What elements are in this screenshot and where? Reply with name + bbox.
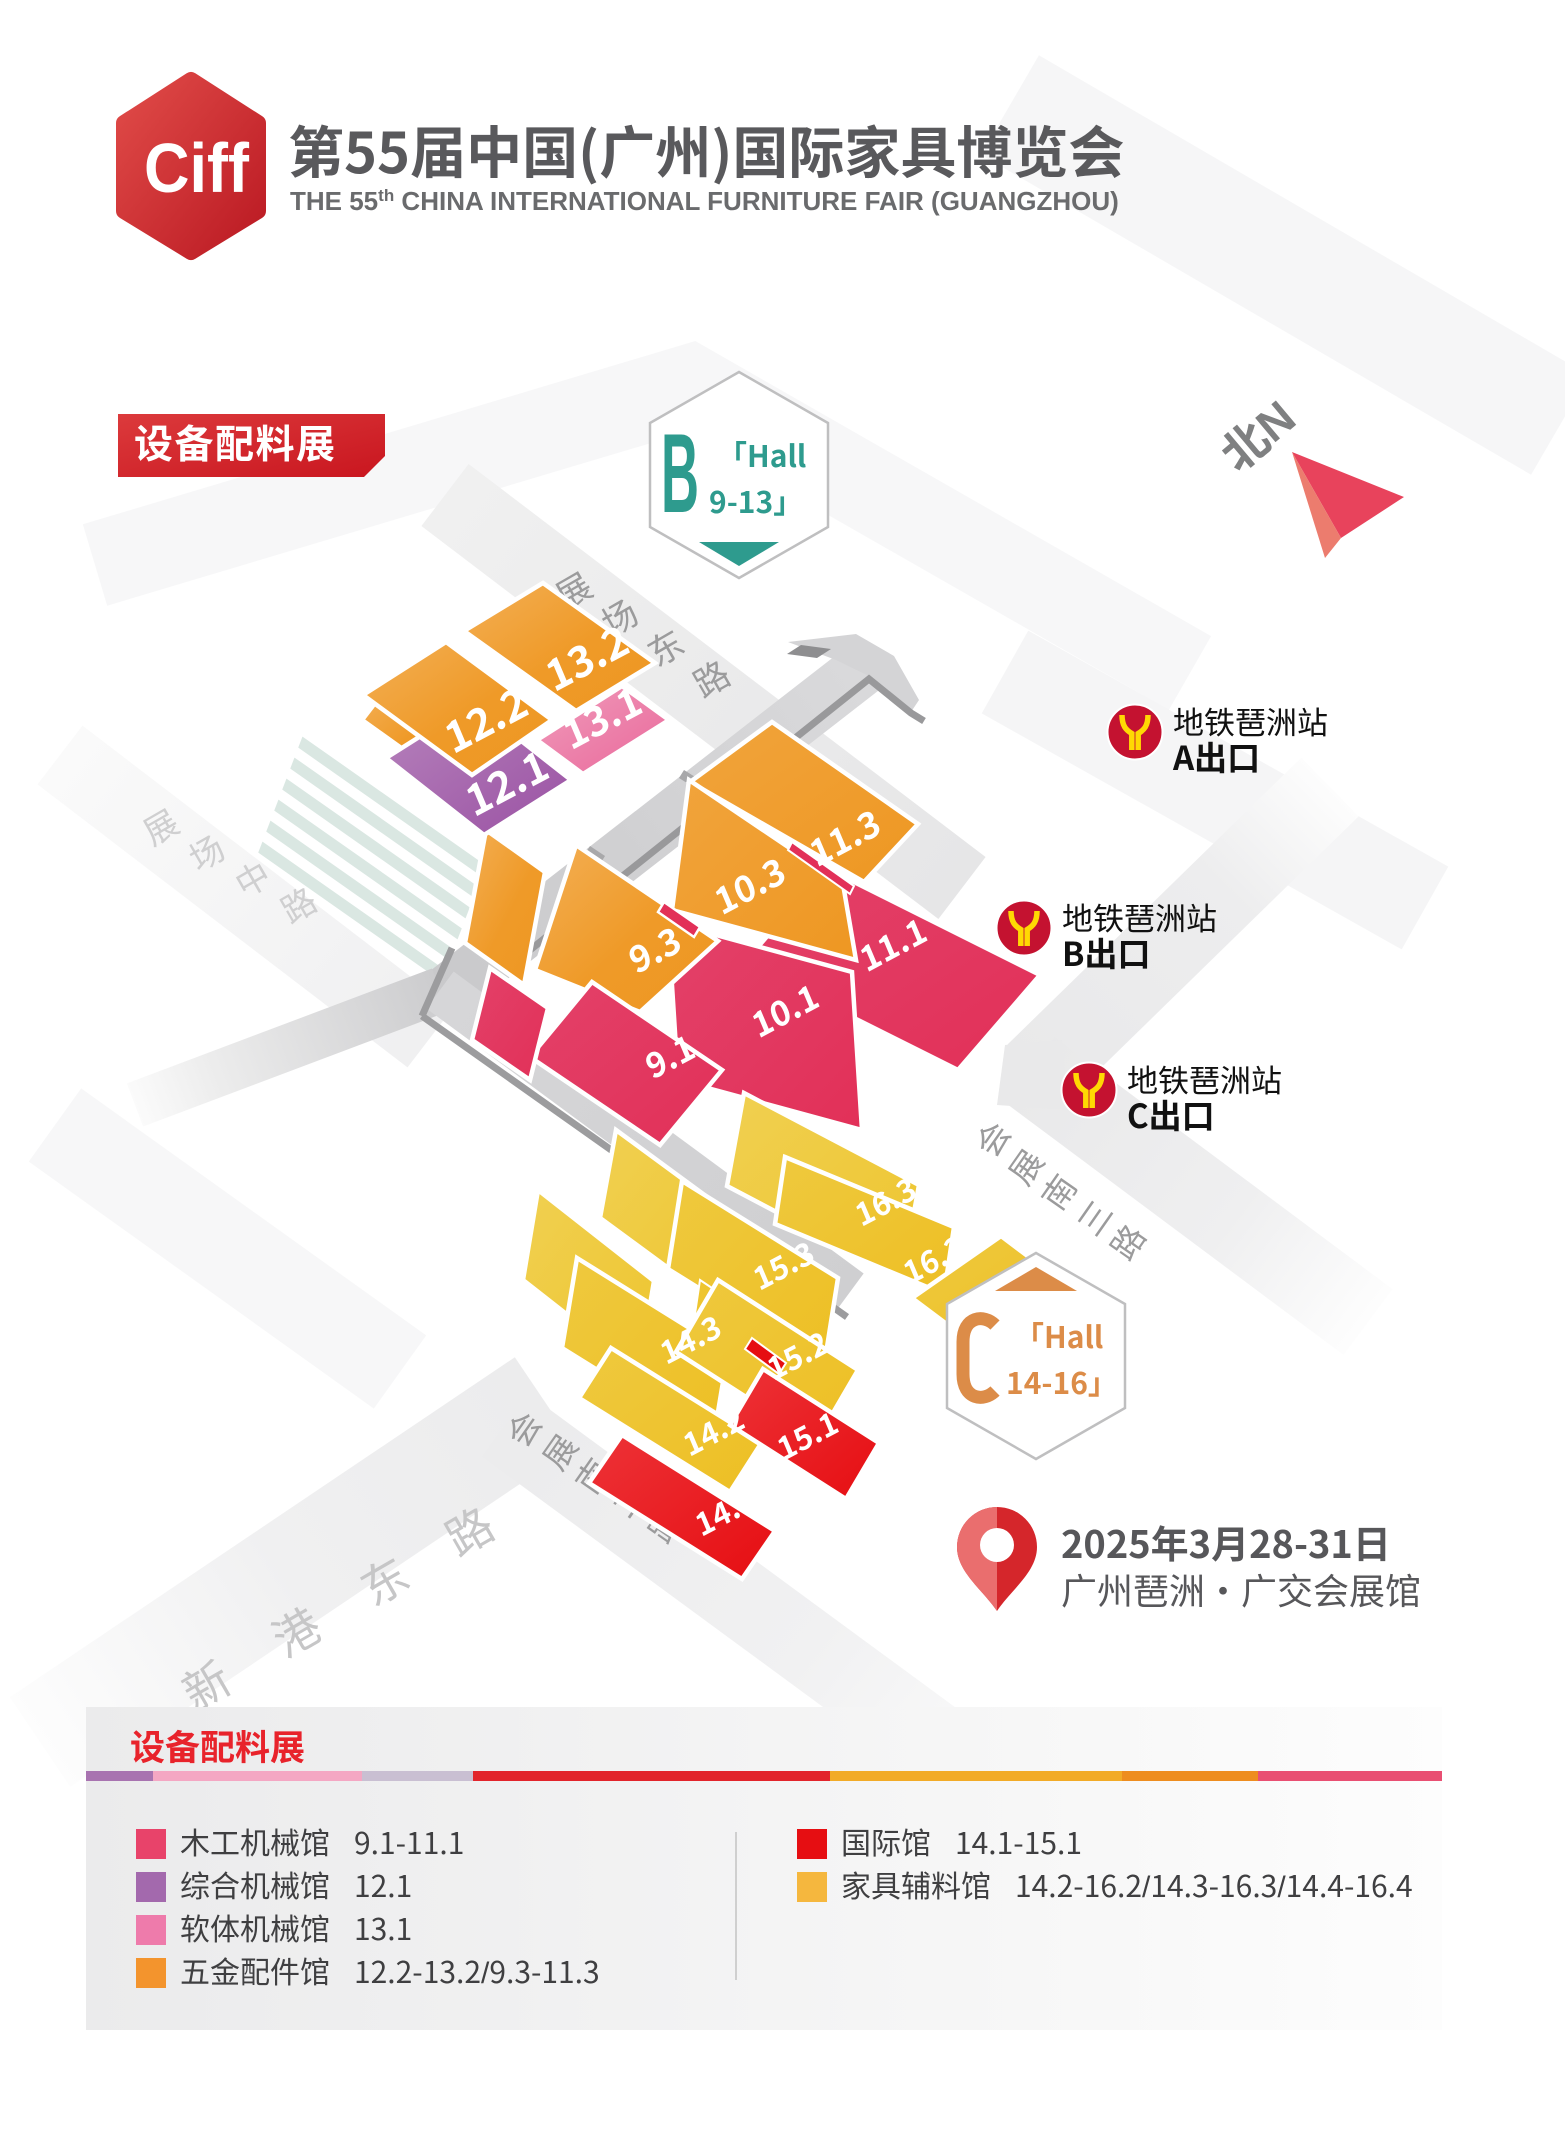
svg-text:设备配料展: 设备配料展 <box>134 414 337 470</box>
svg-text:A出口: A出口 <box>1172 732 1260 780</box>
svg-text:14-16」: 14-16」 <box>1006 1359 1118 1403</box>
svg-text:木工机械馆9.1-11.1: 木工机械馆9.1-11.1 <box>180 1819 464 1863</box>
svg-text:C出口: C出口 <box>1127 1090 1215 1138</box>
svg-text:2025年3月28-31日: 2025年3月28-31日 <box>1061 1514 1391 1569</box>
svg-text:9-13」: 9-13」 <box>709 478 803 522</box>
svg-text:「Hall: 「Hall <box>717 432 806 476</box>
svg-text:B: B <box>661 411 699 536</box>
svg-text:B出口: B出口 <box>1062 928 1150 976</box>
svg-text:「Hall: 「Hall <box>1014 1313 1103 1357</box>
svg-text:国际馆14.1-15.1: 国际馆14.1-15.1 <box>841 1819 1082 1863</box>
svg-text:设备配料展: 设备配料展 <box>130 1720 305 1771</box>
svg-text:软体机械馆13.1: 软体机械馆13.1 <box>180 1905 412 1949</box>
svg-text:综合机械馆12.1: 综合机械馆12.1 <box>180 1862 412 1906</box>
svg-text:家具辅料馆14.2-16.2/14.3-16.3/14.4-: 家具辅料馆14.2-16.2/14.3-16.3/14.4-16.4 <box>841 1862 1413 1906</box>
svg-text:THE 55th CHINA INTERNATIONAL F: THE 55th CHINA INTERNATIONAL FURNITURE F… <box>290 186 1119 216</box>
svg-text:广州琶洲·广交会展馆: 广州琶洲·广交会展馆 <box>1061 1563 1421 1615</box>
svg-text:五金配件馆12.2-13.2/9.3-11.3: 五金配件馆12.2-13.2/9.3-11.3 <box>180 1948 600 1992</box>
svg-text:第55届中国(广州)国际家具博览会: 第55届中国(广州)国际家具博览会 <box>288 109 1124 190</box>
svg-text:Ciff: Ciff <box>144 130 250 208</box>
